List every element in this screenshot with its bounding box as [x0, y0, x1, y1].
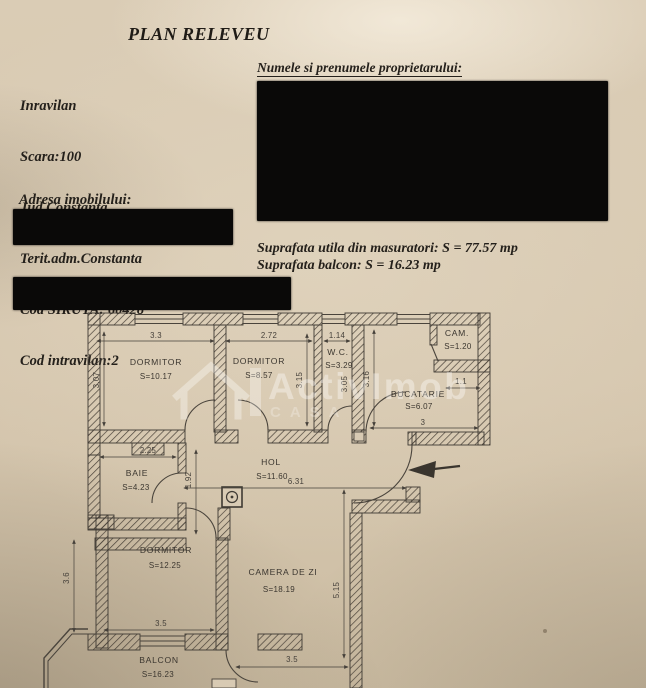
dim-livingroom-height: 5.15 [332, 581, 341, 598]
room-area-camera-de-zi: S=18.19 [263, 585, 295, 594]
room-area-cam: S=1.20 [444, 342, 472, 351]
watermark-sub-text: CASA [270, 404, 349, 421]
dim-livingroom-width: 3.5 [286, 655, 298, 664]
scanned-document-page: PLAN RELEVEU Inravilan Scara:100 Jud.Con… [0, 0, 646, 688]
floor-plan-drawing: 3.3 2.72 1.14 3.07 3.15 3.05 3.16 1.1 3 … [0, 0, 646, 688]
dim-dorm2-width: 2.72 [261, 331, 277, 340]
dim-hol-height: 1.92 [184, 472, 193, 488]
entrance-arrow-icon [408, 461, 460, 478]
room-area-balcon: S=16.23 [142, 670, 174, 679]
photo-speck [543, 629, 547, 633]
room-label-dormitor-3: DORMITOR [140, 545, 192, 555]
house-logo-icon [177, 366, 245, 416]
room-label-cam: CAM. [445, 328, 469, 338]
house-logo-bar [250, 368, 261, 416]
dim-baie-width: 2.25 [140, 446, 157, 455]
room-area-dormitor-1: S=10.17 [140, 372, 172, 381]
dim-dorm3-height: 3.6 [62, 572, 71, 584]
dim-wc-width: 1.14 [329, 331, 346, 340]
dim-dorm1-width: 3.3 [150, 331, 162, 340]
room-area-baie: S=4.23 [122, 483, 150, 492]
dim-dorm1-height: 3.07 [92, 372, 101, 388]
room-label-balcon: BALCON [139, 655, 179, 665]
room-label-camera-de-zi: CAMERA DE ZI [248, 567, 317, 577]
room-label-dormitor-1: DORMITOR [130, 357, 182, 367]
shaft-symbol [222, 487, 242, 507]
room-label-wc: W.C. [327, 347, 348, 357]
watermark-brand-text: ActivImob [268, 366, 469, 407]
room-area-hol: S=11.60 [256, 472, 288, 481]
room-label-hol: HOL [261, 457, 281, 467]
room-area-dormitor-3: S=12.25 [149, 561, 181, 570]
dim-hol-width: 6.31 [288, 477, 304, 486]
dim-dorm3-width: 3.5 [155, 619, 167, 628]
room-label-dormitor-2: DORMITOR [233, 356, 285, 366]
room-label-baie: BAIE [126, 468, 148, 478]
dim-kitchen-width: 3 [421, 418, 426, 427]
balcony-parapet [44, 629, 88, 688]
